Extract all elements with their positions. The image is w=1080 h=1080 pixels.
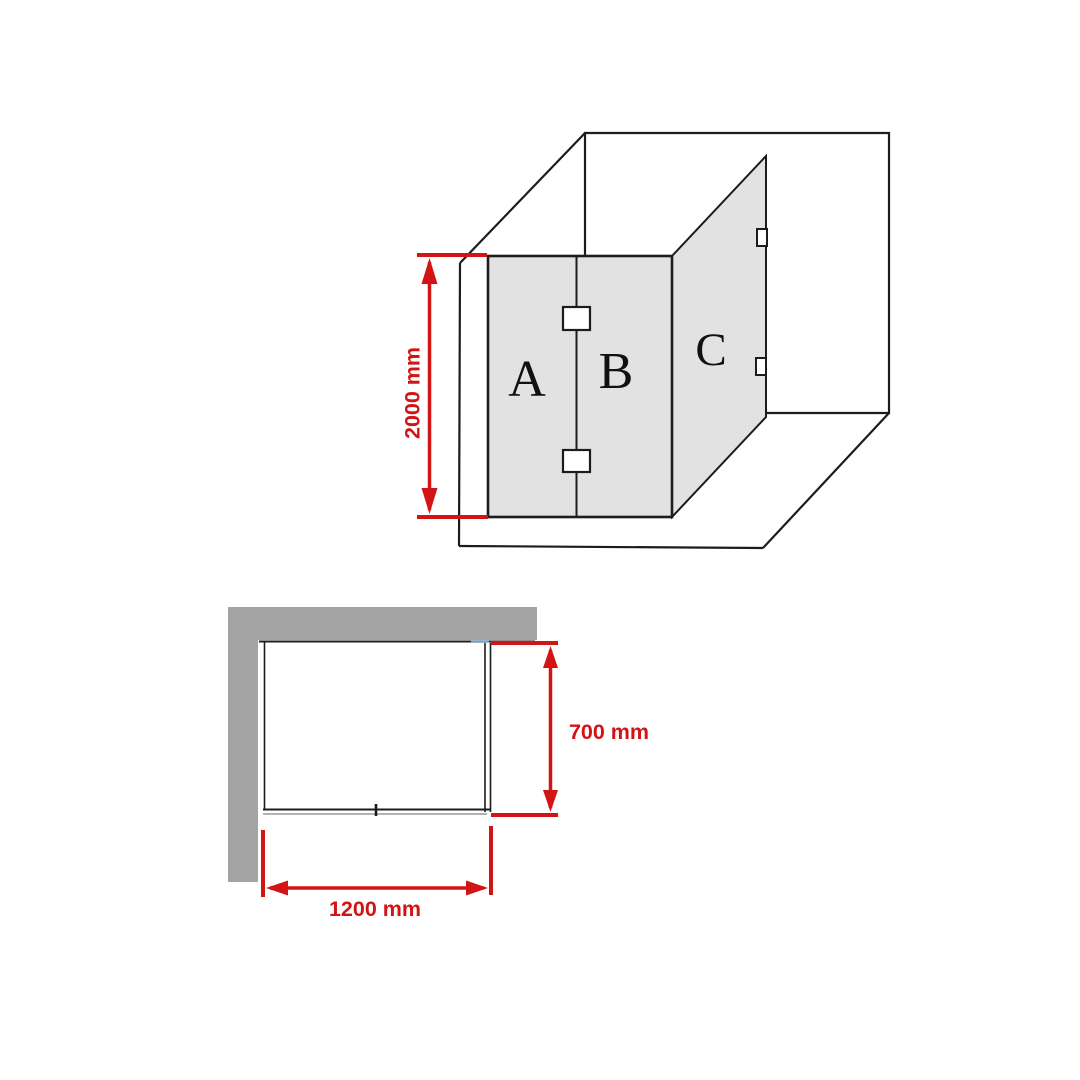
height-dim-label: 2000 mm xyxy=(401,347,425,439)
depth-dim-label: 700 mm xyxy=(569,720,649,744)
width-dim-arrow-right xyxy=(466,881,488,896)
wall-bracket-top xyxy=(757,229,767,246)
width-dim-label: 1200 mm xyxy=(329,897,421,921)
depth-dim-arrow-up xyxy=(543,646,558,668)
left-wall-front-edge xyxy=(459,263,460,546)
isometric-view: A B C 2000 mm xyxy=(401,133,890,548)
width-dim-arrow-left xyxy=(266,881,288,896)
depth-dimension: 700 mm xyxy=(491,643,649,815)
floor-right-edge xyxy=(763,413,889,548)
height-dim-arrow-down xyxy=(422,488,438,514)
depth-dim-arrow-down xyxy=(543,790,558,812)
panel-c-label: C xyxy=(695,324,726,376)
wall-bracket-bottom xyxy=(756,358,766,375)
diagram-canvas: A B C 2000 mm xyxy=(0,0,1080,1080)
hinge-top xyxy=(563,307,590,330)
hinge-bottom xyxy=(563,450,590,472)
diagram-page: A B C 2000 mm xyxy=(0,0,1080,1080)
panel-a-label: A xyxy=(508,351,546,408)
plan-view: 700 mm 1200 mm xyxy=(228,607,649,921)
panel-b-label: B xyxy=(599,343,634,400)
enclosure-outline xyxy=(259,641,535,816)
width-dimension: 1200 mm xyxy=(263,826,491,921)
height-dim-arrow-up xyxy=(422,258,438,284)
floor-front-edge xyxy=(459,546,763,548)
height-dimension: 2000 mm xyxy=(401,255,489,517)
left-wall-top-edge xyxy=(460,133,585,263)
